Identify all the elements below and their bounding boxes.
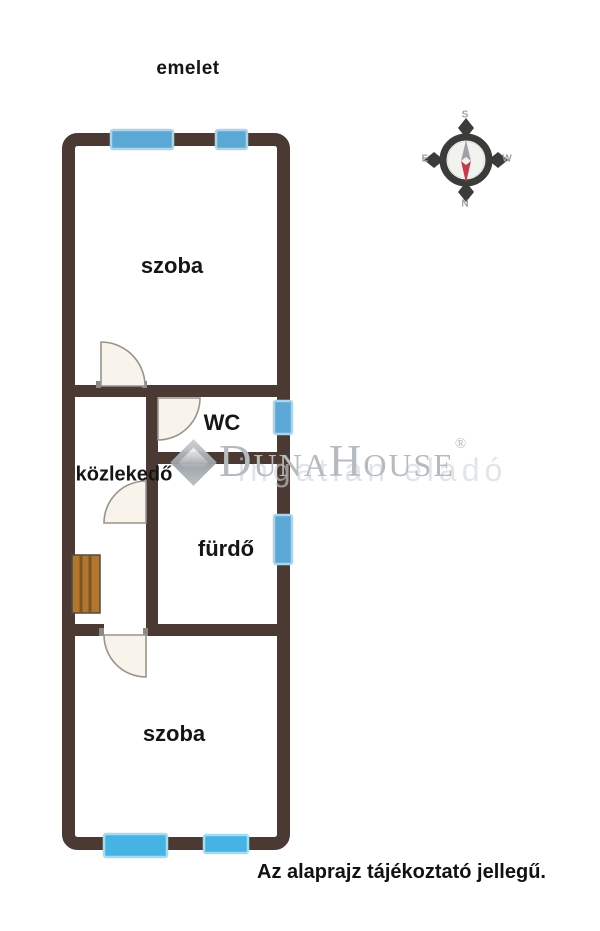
floorplan-page: emelet szoba WC közlekedő fürdő szoba S … <box>0 0 600 931</box>
floor-title: emelet <box>156 58 219 80</box>
compass-letter-top: S <box>462 110 469 121</box>
compass-letter-bottom: N <box>461 199 468 210</box>
room-label-wc: WC <box>204 410 241 436</box>
radiator <box>72 555 100 613</box>
room-label-szoba-top: szoba <box>141 253 203 279</box>
compass-letter-left: E <box>422 154 429 165</box>
disclaimer-text: Az alaprajz tájékoztató jellegű. <box>257 861 546 884</box>
compass-letter-right: W <box>502 154 511 165</box>
room-label-furdo: fürdő <box>198 536 254 562</box>
window-wc <box>274 401 292 434</box>
window-bottom-left <box>104 834 167 857</box>
room-label-szoba-bottom: szoba <box>143 721 205 747</box>
window-bottom-right <box>204 835 248 853</box>
compass-rose <box>424 118 508 202</box>
window-furdo <box>274 515 292 564</box>
window-top-right <box>216 130 247 149</box>
wall-bottom-divider-right <box>146 624 290 636</box>
wall-bottom-divider-left <box>62 624 104 636</box>
room-label-kozlekedo: közlekedő <box>76 464 173 487</box>
wall-vertical-corridor <box>146 385 158 636</box>
window-top-left <box>111 130 173 149</box>
wall-wc-furdo-divider <box>146 452 290 464</box>
